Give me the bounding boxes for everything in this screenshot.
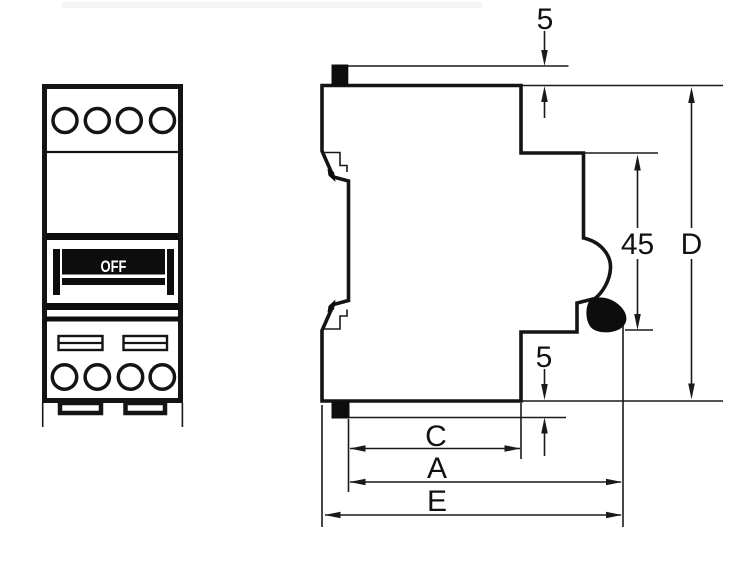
mcb-dimension-drawing: OFF (0, 0, 745, 573)
terminal-screw-icon (150, 365, 174, 389)
arrowhead-up-icon (541, 418, 548, 434)
arrowhead-down-icon (541, 50, 548, 66)
arrowhead-up-icon (688, 87, 695, 103)
side-profile-outline (322, 86, 611, 402)
front-view: OFF (43, 87, 183, 428)
arrowhead-right-icon (606, 479, 622, 486)
dim-bottom-protrusion: 5 (536, 341, 553, 456)
terminal-screw-icon (118, 365, 142, 389)
dim-overall-height: D (681, 87, 703, 400)
dim-label-45: 45 (621, 228, 654, 261)
side-view (322, 65, 723, 528)
dim-top-protrusion: 5 (537, 3, 554, 118)
arrowhead-up-icon (634, 155, 641, 171)
dim-depth-e: E (325, 485, 623, 518)
front-band-middle (46, 303, 179, 310)
bottom-tab-left (60, 403, 101, 413)
arrowhead-down-icon (541, 384, 548, 400)
dim-depth-c: C (350, 420, 521, 453)
arrowhead-right-icon (505, 445, 521, 452)
dim-din-recess: 45 (621, 155, 654, 331)
terminal-screw-icon (151, 109, 175, 133)
arrowhead-down-icon (634, 314, 641, 330)
dim-label-d: D (681, 228, 703, 261)
toggle-switch: OFF (62, 249, 165, 285)
toggle-off-label: OFF (101, 258, 127, 276)
dim-label-a: A (427, 452, 447, 485)
arrowhead-up-icon (541, 86, 548, 102)
terminal-screw-icon (52, 365, 76, 389)
side-bottom-tab (332, 402, 350, 419)
drawing-svg: OFF (0, 0, 745, 573)
toggle-guide-left (53, 249, 60, 295)
terminal-screw-icon (53, 109, 77, 133)
scan-artifact (62, 2, 482, 8)
terminal-screw-icon (85, 109, 109, 133)
din-clip-hook (586, 297, 626, 332)
dim-depth-a: A (350, 452, 623, 485)
arrowhead-right-icon (606, 512, 622, 519)
front-band-upper (46, 233, 179, 240)
bottom-tab-right (126, 403, 166, 413)
terminal-screw-icon (85, 365, 109, 389)
toggle-guide-right (167, 249, 174, 295)
arrowhead-down-icon (688, 384, 695, 400)
terminal-screw-icon (117, 109, 141, 133)
side-toggle-lever (332, 65, 349, 86)
dim-label-e: E (427, 485, 447, 518)
front-band-lower (46, 317, 179, 322)
